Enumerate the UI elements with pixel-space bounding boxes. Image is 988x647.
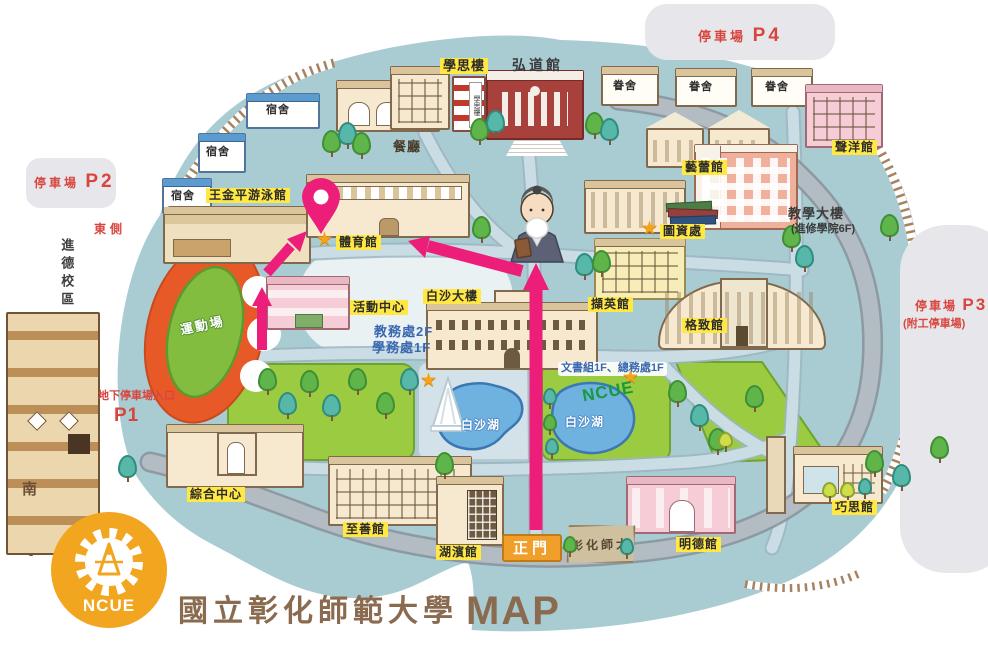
label-gezhi: 格致館 [682, 318, 727, 333]
ncue-logo: NCUE [51, 512, 167, 628]
ncue-logo-text: NCUE [51, 596, 167, 616]
parking-p1-code: P1 [114, 404, 139, 428]
parking-p2-code: P2 [85, 171, 114, 192]
label-baisha: 白沙大樓 [423, 289, 481, 304]
building-shengyang [805, 84, 883, 148]
tree-icon [486, 110, 505, 133]
tree-icon [376, 392, 395, 415]
tree-icon [620, 538, 634, 555]
tree-icon [745, 385, 764, 408]
tree-icon [892, 464, 911, 487]
label-zhishan: 至善館 [343, 522, 388, 537]
parking-area-p3 [900, 225, 988, 573]
label-east-side: 東側 [94, 222, 126, 237]
parking-p4-code: P4 [753, 25, 782, 46]
map-title-word: MAP [466, 589, 561, 633]
label-activity: 活動中心 [350, 300, 408, 315]
label-dorm-1: 宿舍 [266, 104, 290, 118]
tree-icon [258, 368, 277, 391]
tree-icon [545, 438, 559, 455]
label-offices-1: 教務處2F [374, 324, 433, 340]
label-shengyang: 聲洋館 [832, 140, 877, 155]
tree-icon [563, 536, 577, 553]
parking-p1-label: 地下停車場入口 [98, 390, 175, 404]
tree-icon [668, 380, 687, 403]
tree-icon [600, 118, 619, 141]
complex-arch [227, 442, 245, 474]
tree-icon [858, 478, 872, 495]
tree-icon [118, 455, 137, 478]
star-icon: ★ [316, 230, 333, 249]
tree-icon [322, 394, 341, 417]
label-library: 圖資處 [660, 224, 705, 239]
label-yilei: 藝蕾館 [682, 160, 727, 175]
building-pool [163, 206, 311, 264]
mingde-arch [669, 500, 695, 532]
gezhi-door [736, 326, 748, 346]
label-staff-dorm-1: 眷舍 [613, 80, 637, 94]
parking-p2-text: 停車場 [34, 176, 79, 190]
parking-p2-label: 停車場 P2 [34, 170, 115, 194]
parking-p4-label: 停車場 P4 [698, 24, 782, 48]
building-activity [266, 276, 350, 330]
tree-icon [930, 436, 949, 459]
tree-icon [543, 414, 557, 431]
tree-icon [278, 392, 297, 415]
label-offices-3: 文書組1F、總務處1F [558, 362, 667, 376]
tree-icon [400, 368, 419, 391]
main-gate-sign: 正門 [502, 534, 562, 562]
building-baisha [426, 302, 598, 370]
label-xieying: 擷英館 [588, 297, 633, 312]
parking-p3-note: (附工停車場) [903, 318, 965, 332]
label-teaching-note: (進修學院6F) [791, 223, 855, 237]
parking-p3-text: 停車場 [915, 299, 957, 313]
window-diamond [59, 411, 79, 431]
label-teaching: 教學大樓 [788, 206, 844, 222]
white-band [268, 290, 348, 298]
tree-icon [300, 370, 319, 393]
dark-window-grid [467, 490, 497, 540]
label-hubin: 湖濱館 [436, 545, 481, 560]
label-staff-dorm-3: 眷舍 [765, 81, 789, 95]
hongdao-steps [506, 140, 568, 156]
label-xuesi: 學思樓 [440, 58, 488, 74]
label-lake-left: 白沙湖 [461, 418, 500, 433]
compass-south-label: 南 [22, 481, 38, 500]
map-title: 國立彰化師範大學MAP [178, 586, 561, 634]
qiaosi-chimney [766, 436, 786, 514]
parking-p3-code: P3 [962, 295, 987, 314]
building-mingde [626, 476, 736, 534]
label-pool: 王金平游泳館 [206, 188, 290, 203]
pool-front [173, 239, 231, 257]
door-dark [68, 434, 90, 454]
label-campus-area: 進德校區 [58, 238, 74, 328]
building-hubin [436, 476, 504, 546]
tree-icon [348, 368, 367, 391]
parking-p4-text: 停車場 [698, 29, 746, 44]
tree-icon [690, 404, 709, 427]
tree-icon [352, 132, 371, 155]
label-dorm-2: 宿舍 [206, 146, 230, 160]
label-qiaosi: 巧思館 [832, 500, 877, 515]
window-row [436, 320, 588, 330]
tree-icon [795, 245, 814, 268]
label-dorm-3: 宿舍 [171, 190, 195, 204]
clerestory [314, 186, 462, 200]
map-title-university: 國立彰化師範大學 [178, 595, 458, 628]
label-hongdao: 弘道館 [512, 57, 563, 75]
bush-icon [822, 482, 837, 498]
tree-icon [592, 250, 611, 273]
parking-p3-label: 停車場 P3 [915, 294, 987, 315]
label-staff-dorm-2: 眷舍 [689, 81, 713, 95]
window-diamond [27, 411, 47, 431]
bush-icon [718, 432, 733, 448]
tree-icon [543, 388, 557, 405]
label-gym: 體育館 [336, 235, 381, 250]
tree-icon [472, 216, 491, 239]
bush-icon [840, 482, 855, 498]
green-doors [295, 314, 323, 328]
campus-map: 宿舍 宿舍 宿舍 學思樓 眷舍 眷舍 眷舍 [0, 0, 988, 647]
tree-icon [865, 450, 884, 473]
building-complex [166, 424, 304, 488]
building-xuesi-annex [390, 66, 450, 130]
star-icon: ★ [641, 219, 658, 238]
arch-entrance [504, 348, 520, 368]
gym-door [379, 218, 399, 236]
tree-icon [435, 452, 454, 475]
label-complex: 綜合中心 [187, 487, 245, 502]
label-cafeteria: 餐廳 [393, 139, 421, 155]
label-mingde: 明德館 [676, 537, 721, 552]
star-icon: ★ [420, 371, 437, 390]
tree-icon [880, 214, 899, 237]
emblem [530, 86, 540, 96]
label-lake-right: 白沙湖 [565, 415, 604, 430]
label-offices-2: 學務處1F [372, 340, 431, 356]
